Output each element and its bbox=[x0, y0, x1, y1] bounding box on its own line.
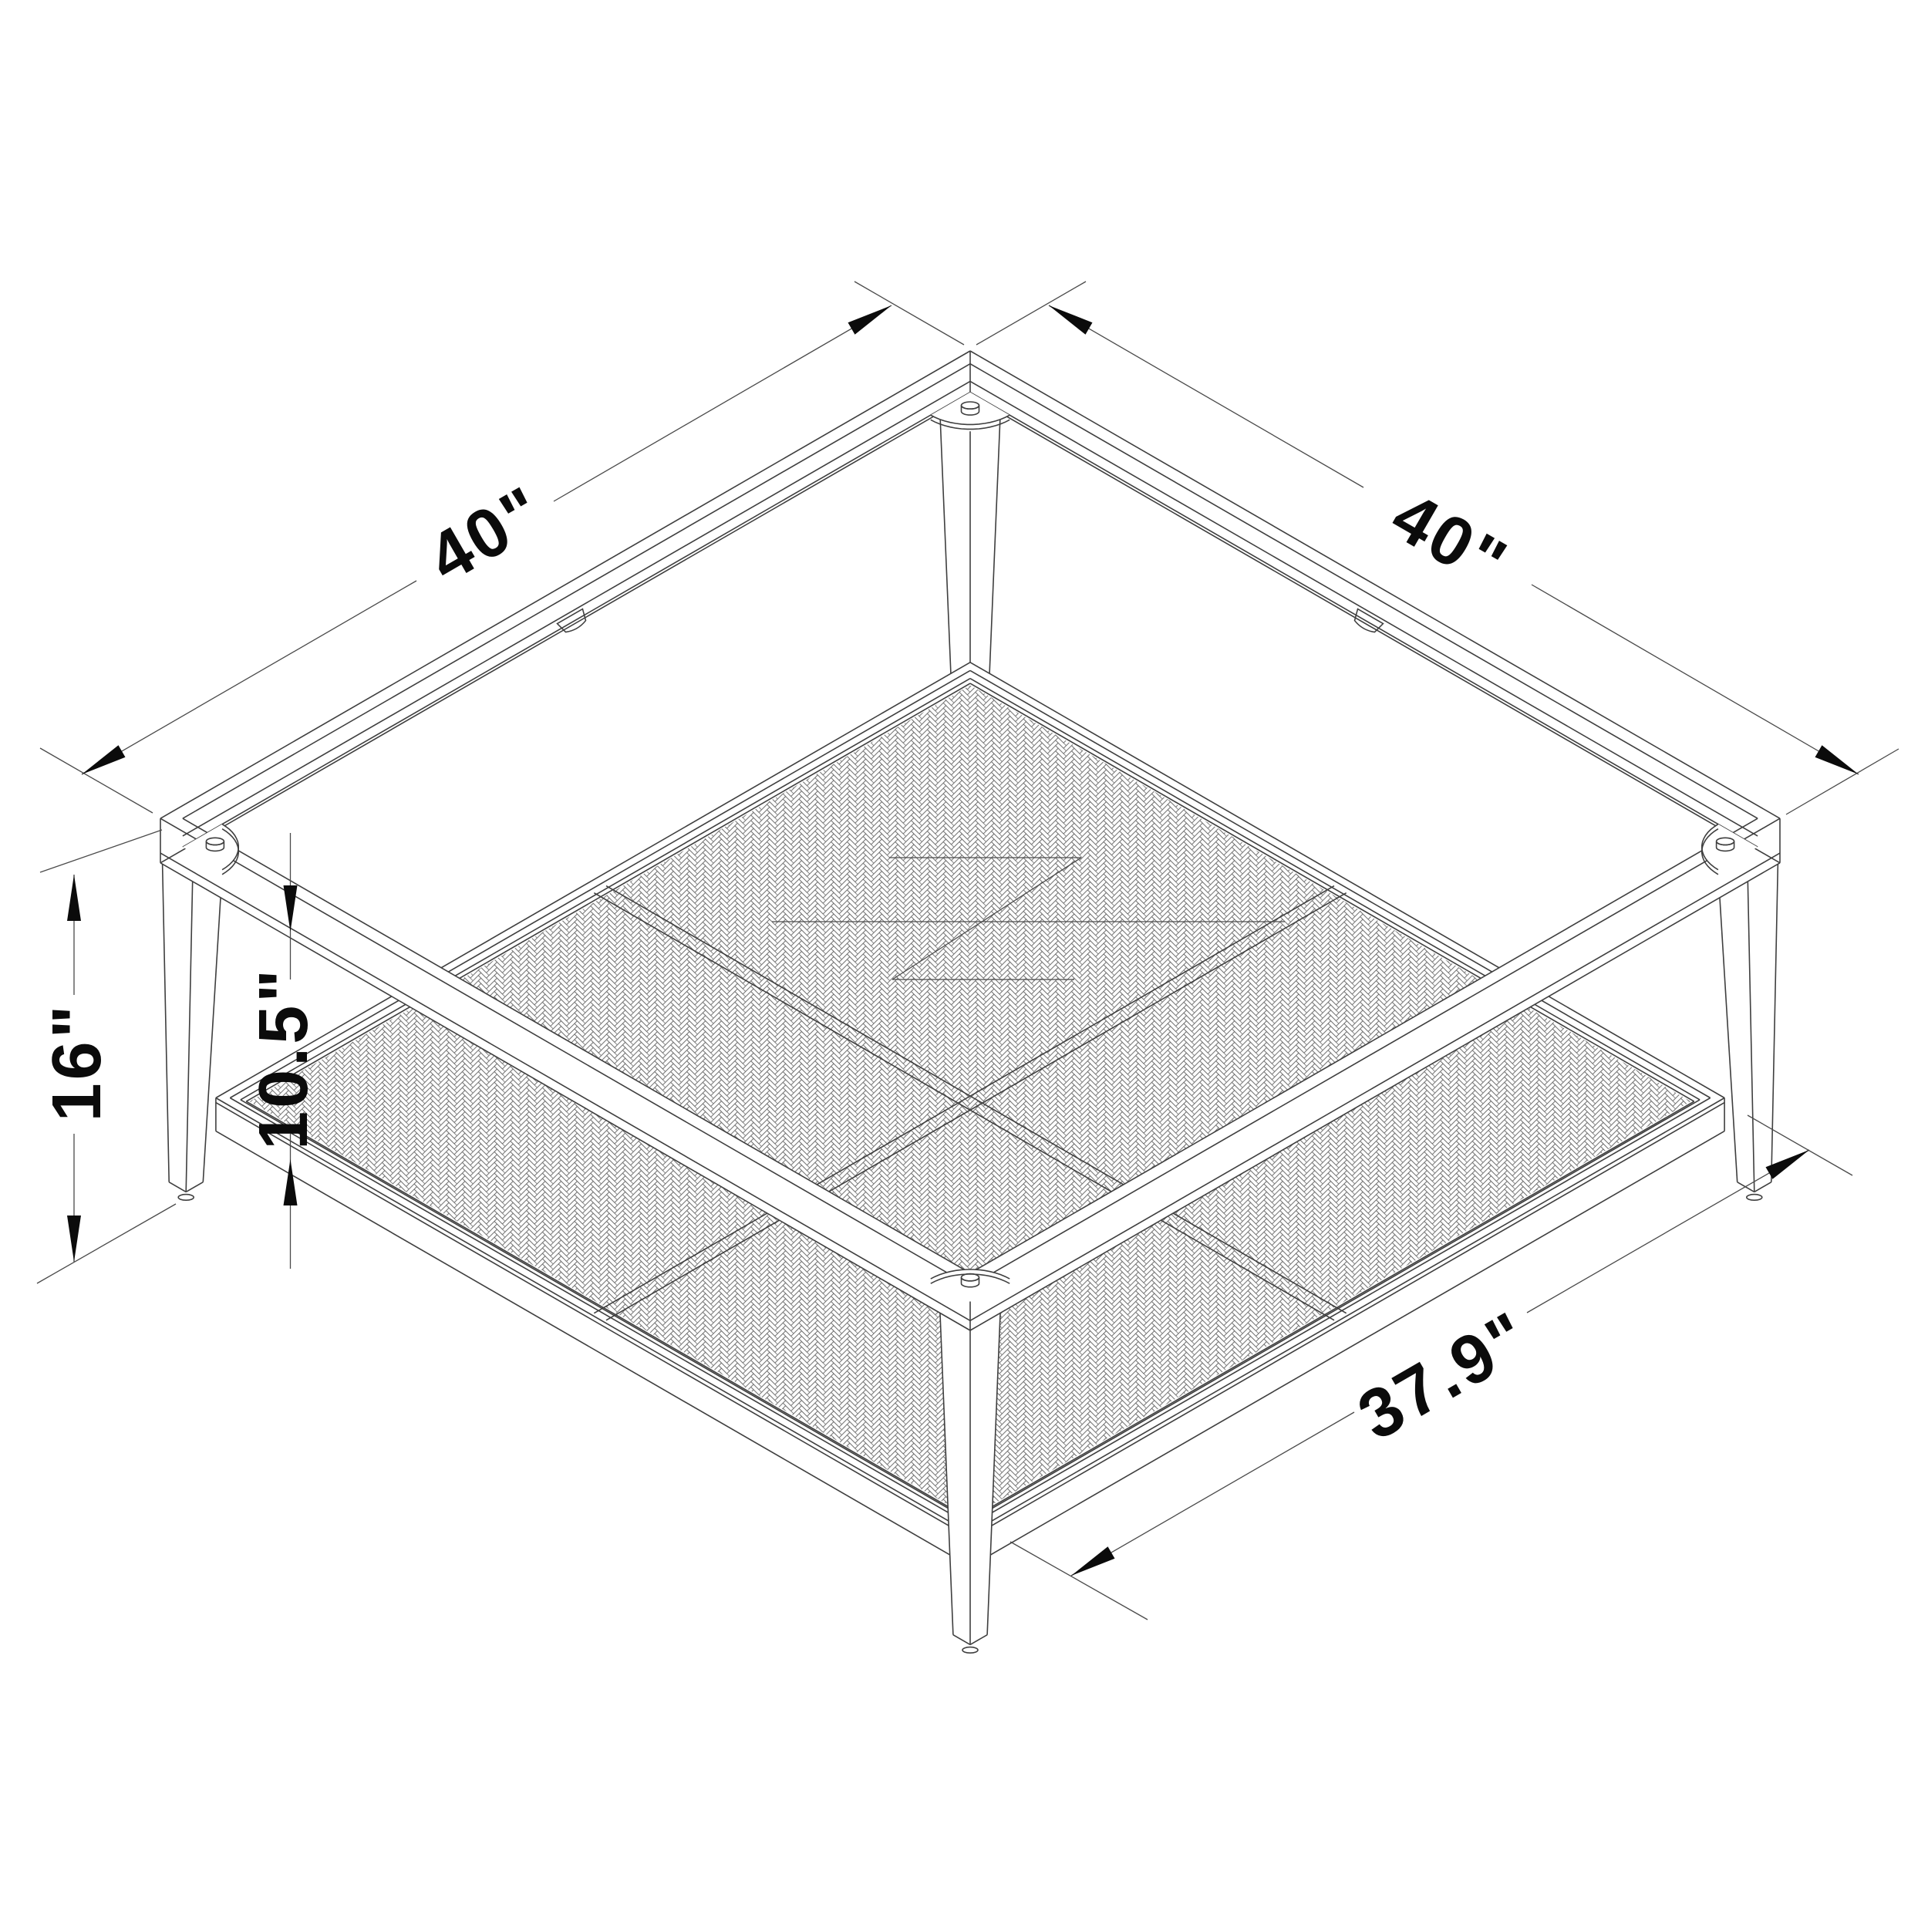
svg-text:16": 16" bbox=[39, 1003, 116, 1122]
svg-text:10.5": 10.5" bbox=[245, 966, 322, 1150]
